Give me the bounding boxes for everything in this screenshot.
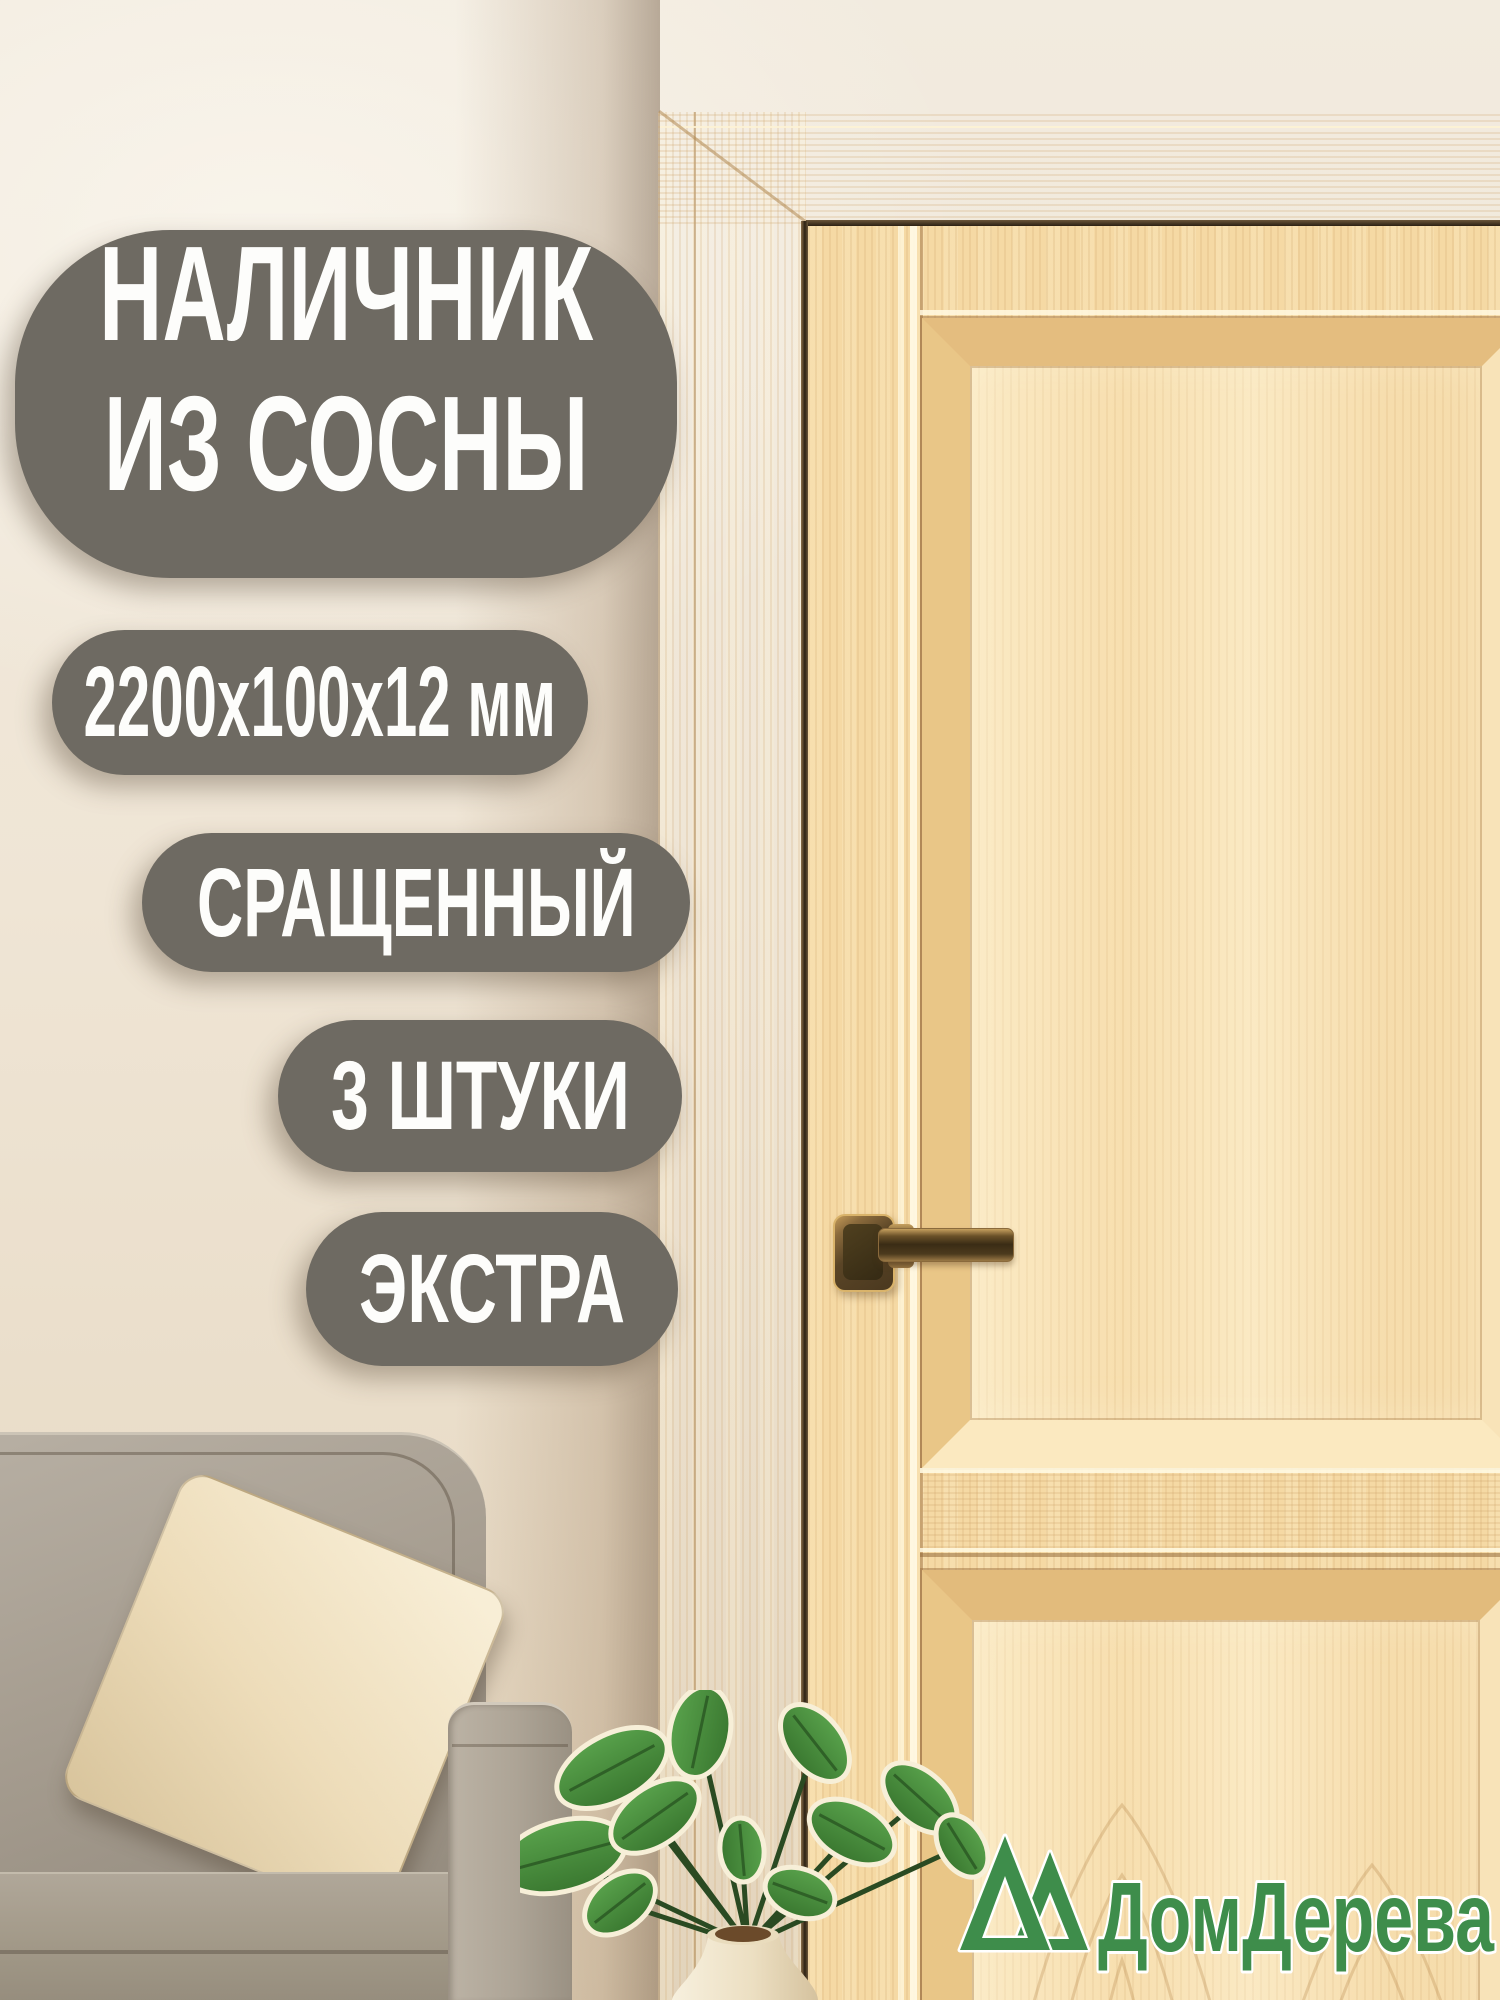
sofa-seat-seam [0,1950,454,1954]
vase [672,1925,818,2000]
lock-rail-shadow-line [920,1553,1500,1557]
badge-grade: ЭКСТРА [306,1212,678,1366]
lock-rail [920,1473,1500,1548]
sofa-seat [0,1872,454,2000]
badge-quantity: 3 ШТУКИ [278,1020,682,1172]
brand-logo: ДомДерева [940,1820,1500,2000]
badge-dimensions: 2200х100х12 мм [52,630,588,775]
badge-product-title: НАЛИЧНИК ИЗ СОСНЫ [15,230,677,578]
title-line-2: ИЗ СОСНЫ [99,369,593,519]
title-line-1: НАЛИЧНИК [99,219,593,369]
badge-material-type: СРАЩЕННЫЙ [142,833,690,972]
brand-name: ДомДерева [1098,1862,1495,1972]
twin-pine-triangles-icon [960,1836,1088,1950]
badge-quantity-text: 3 ШТУКИ [331,1040,630,1152]
badge-product-title-text: НАЛИЧНИК ИЗ СОСНЫ [99,219,593,589]
door-handle-rosette-inner [843,1224,883,1280]
badge-dimensions-text: 2200х100х12 мм [84,645,557,760]
badge-grade-text: ЭКСТРА [359,1233,625,1345]
door-top-rail-highlight [920,310,1500,315]
potted-plant [520,1690,1000,2000]
door-upper-panel [922,318,1500,1468]
door-upper-panel-field [970,366,1482,1420]
badge-material-type-text: СРАЩЕННЫЙ [197,847,636,959]
door-handle-lever [878,1228,1014,1262]
lock-rail-highlight-bottom [920,1548,1500,1552]
product-banner: ДомДерева НАЛИЧНИК ИЗ СОСНЫ 2200х100х12 … [0,0,1500,2000]
door-casing-top-highlight [660,126,1500,128]
